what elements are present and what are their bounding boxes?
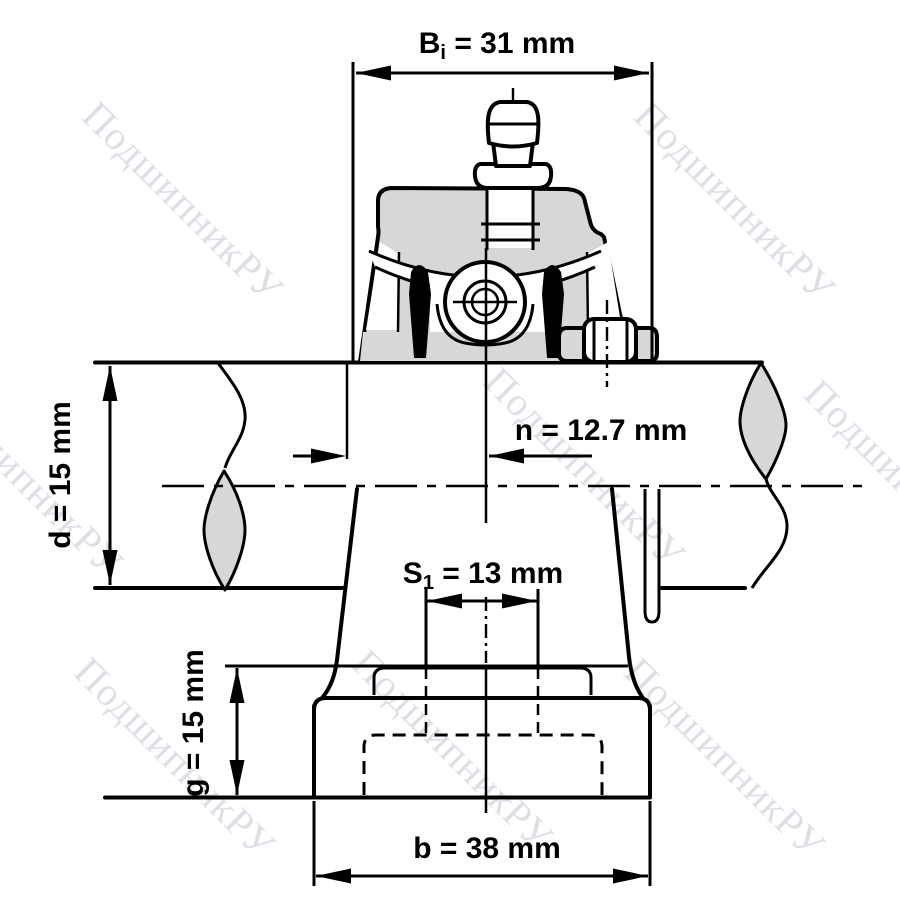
break-s-curve-left <box>218 363 245 468</box>
watermark-text: ПодшипникРУ <box>626 93 845 312</box>
n-label: n = 12.7 mm <box>515 414 688 447</box>
b-arrow-left <box>316 869 351 884</box>
s1-arrow-right <box>502 594 537 609</box>
break-lens-left <box>204 471 245 590</box>
break-s-curve-right <box>752 479 787 588</box>
d-label: d = 15 mm <box>44 401 77 549</box>
g-label: g = 15 mm <box>177 649 210 797</box>
n-arrow-left <box>311 449 346 464</box>
watermark-text: ПодшипникРУ <box>66 649 285 868</box>
g-arrow-top <box>230 668 245 703</box>
technical-drawing-canvas: ПодшипникРУ ПодшипникРУ ПодшипникРУ Подш… <box>0 0 900 900</box>
dim-b: b = 38 mm <box>314 801 650 886</box>
watermark-text: ПодшипникРУ <box>476 359 695 578</box>
d-arrow-top <box>103 366 118 401</box>
grease-nipple <box>475 88 551 188</box>
bi-arrow-right <box>614 66 649 81</box>
n-arrow-right <box>489 449 524 464</box>
bearing-drawing-page: ПодшипникРУ ПодшипникРУ ПодшипникРУ Подш… <box>0 0 900 900</box>
watermark-text: ПодшипникРУ <box>796 371 900 590</box>
b-label: b = 38 mm <box>413 832 561 865</box>
collar-right-block <box>636 328 657 361</box>
base-top-edge <box>314 698 650 710</box>
break-lens-right <box>740 363 786 479</box>
watermark-text: ПодшипникРУ <box>74 93 293 312</box>
s1-arrow-left <box>427 594 462 609</box>
bi-arrow-left <box>356 66 391 81</box>
b-arrow-right <box>613 869 648 884</box>
bi-label: Bi = 31 mm <box>419 27 575 64</box>
collar-left-block <box>559 328 584 361</box>
s1-label: S1 = 13 mm <box>403 557 563 594</box>
dim-s1: S1 = 13 mm <box>403 557 563 665</box>
